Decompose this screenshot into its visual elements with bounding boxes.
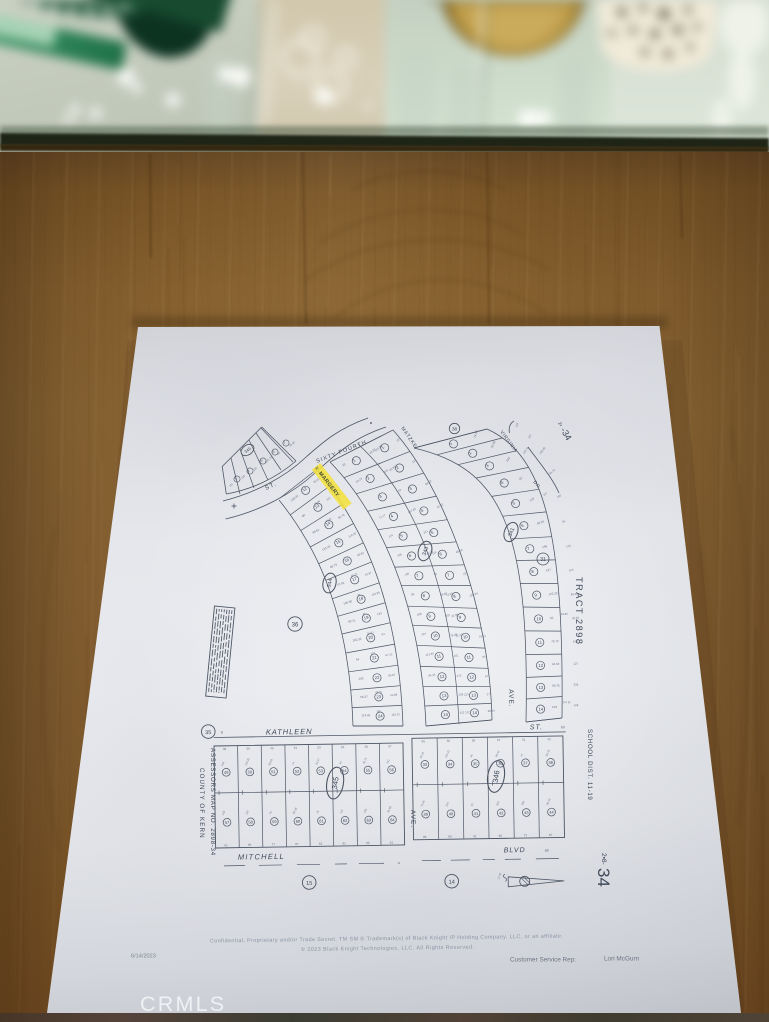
svg-text:35: 35 <box>205 730 211 736</box>
svg-text:-34: -34 <box>558 426 573 442</box>
svg-text:115: 115 <box>252 466 258 472</box>
svg-text:AVE.: AVE. <box>507 689 514 707</box>
svg-text:127: 127 <box>573 662 578 666</box>
svg-text:64: 64 <box>390 817 395 822</box>
svg-text:59.76: 59.76 <box>552 684 560 688</box>
svg-text:60: 60 <box>301 513 306 518</box>
svg-text:62: 62 <box>518 476 523 481</box>
svg-text:54: 54 <box>356 657 360 662</box>
svg-text:13: 13 <box>442 693 448 698</box>
svg-text:100.78: 100.78 <box>522 446 530 455</box>
svg-text:232: 232 <box>574 683 579 687</box>
svg-text:98.34: 98.34 <box>488 709 496 713</box>
svg-text:49: 49 <box>270 746 274 750</box>
svg-text:67: 67 <box>485 674 489 678</box>
svg-text:62: 62 <box>343 818 348 823</box>
svg-text:53.23: 53.23 <box>355 476 363 484</box>
svg-text:106: 106 <box>520 800 526 806</box>
svg-text:115: 115 <box>376 709 381 713</box>
svg-text:12: 12 <box>439 674 445 680</box>
svg-text:163: 163 <box>495 800 501 806</box>
svg-text:63: 63 <box>319 842 323 846</box>
svg-text:221: 221 <box>423 529 429 535</box>
svg-text:171: 171 <box>487 692 492 696</box>
svg-text:111: 111 <box>228 482 234 488</box>
svg-text:ST.: ST. <box>530 724 543 731</box>
svg-text:6: 6 <box>439 551 444 557</box>
svg-text:58: 58 <box>248 819 253 824</box>
svg-text:5: 5 <box>512 500 517 506</box>
svg-text:20: 20 <box>368 634 374 640</box>
svg-text:40.71: 40.71 <box>362 756 369 764</box>
svg-text:2▪: 2▪ <box>557 421 564 427</box>
svg-text:116.57: 116.57 <box>391 712 400 716</box>
svg-text:8: 8 <box>453 593 457 599</box>
svg-text:80: 80 <box>448 835 452 839</box>
svg-text:53: 53 <box>318 768 323 773</box>
svg-text:80: 80 <box>482 654 486 659</box>
svg-text:49: 49 <box>433 571 438 576</box>
svg-text:55.31: 55.31 <box>419 751 426 759</box>
svg-text:ST.: ST. <box>264 481 278 491</box>
svg-text:43: 43 <box>547 737 551 741</box>
svg-text:10: 10 <box>463 634 469 640</box>
svg-text:123.45: 123.45 <box>321 544 331 552</box>
svg-text:ASSESSORS MAP NO. 2898-34: ASSESSORS MAP NO. 2898-34 <box>209 748 216 856</box>
svg-text:83: 83 <box>248 843 252 847</box>
svg-text:56.63: 56.63 <box>267 758 274 766</box>
svg-text:196: 196 <box>542 544 548 549</box>
svg-text:58.37: 58.37 <box>360 694 368 699</box>
svg-text:82.11: 82.11 <box>348 618 356 624</box>
svg-text:38: 38 <box>452 427 458 432</box>
svg-text:51: 51 <box>271 769 276 774</box>
svg-text:130.60: 130.60 <box>343 599 353 606</box>
svg-text:219: 219 <box>240 473 246 479</box>
svg-text:56: 56 <box>422 739 426 743</box>
svg-text:187: 187 <box>546 568 552 573</box>
svg-text:6/14/2023: 6/14/2023 <box>131 954 156 960</box>
svg-text:128: 128 <box>574 703 579 707</box>
svg-text:33: 33 <box>423 762 428 767</box>
svg-text:128.91: 128.91 <box>290 493 300 502</box>
svg-text:346: 346 <box>491 770 502 784</box>
svg-text:80: 80 <box>545 849 549 853</box>
svg-text:77: 77 <box>272 842 276 846</box>
svg-text:24: 24 <box>378 713 384 718</box>
svg-text:12: 12 <box>538 663 543 668</box>
svg-text:6: 6 <box>408 553 413 559</box>
svg-text:113: 113 <box>460 710 465 714</box>
svg-text:© 2023 Black Knight Technologi: © 2023 Black Knight Technologies, LLC. A… <box>301 944 474 953</box>
svg-text:90.87: 90.87 <box>388 673 396 678</box>
svg-text:TRACT 2898: TRACT 2898 <box>574 577 584 645</box>
svg-text:122.20: 122.20 <box>243 757 250 767</box>
svg-text:49.19: 49.19 <box>375 690 382 695</box>
svg-text:75.26: 75.26 <box>419 799 426 807</box>
svg-text:2: 2 <box>467 450 473 455</box>
svg-text:84.79: 84.79 <box>548 468 556 476</box>
svg-text:21: 21 <box>372 655 378 661</box>
svg-text:224: 224 <box>421 631 427 636</box>
svg-text:48: 48 <box>223 747 227 751</box>
svg-text:36: 36 <box>292 623 299 629</box>
svg-text:44.32: 44.32 <box>552 662 560 666</box>
svg-text:81.10: 81.10 <box>545 797 552 805</box>
svg-text:211: 211 <box>385 758 391 764</box>
svg-text:7: 7 <box>446 572 451 578</box>
svg-text:107.81: 107.81 <box>563 700 572 704</box>
svg-text:69.75: 69.75 <box>329 562 338 569</box>
svg-text:3: 3 <box>484 463 490 468</box>
svg-text:132: 132 <box>411 458 417 464</box>
svg-text:45.26: 45.26 <box>455 548 463 555</box>
svg-text:87: 87 <box>549 833 553 837</box>
svg-text:31: 31 <box>540 557 546 563</box>
svg-text:Confidential, Proprietary and/: Confidential, Proprietary and/or Trade S… <box>210 933 563 945</box>
svg-text:111: 111 <box>339 808 345 814</box>
svg-text:5: 5 <box>430 529 435 535</box>
svg-text:37: 37 <box>523 760 528 765</box>
svg-text:70.51: 70.51 <box>479 633 487 638</box>
svg-text:345: 345 <box>330 776 341 790</box>
svg-text:55: 55 <box>366 768 371 773</box>
svg-text:59: 59 <box>472 739 476 743</box>
svg-text:215: 215 <box>464 692 469 696</box>
svg-text:61: 61 <box>319 818 324 823</box>
svg-text:114.91: 114.91 <box>361 713 370 717</box>
svg-text:86: 86 <box>423 835 427 839</box>
svg-text:60: 60 <box>561 725 565 729</box>
svg-text:75.72: 75.72 <box>551 639 559 643</box>
svg-text:2▪8-: 2▪8- <box>600 853 607 865</box>
svg-text:4: 4 <box>420 507 425 513</box>
svg-text:95.83: 95.83 <box>386 805 393 813</box>
svg-text:97.52: 97.52 <box>436 502 444 509</box>
svg-text:AVE.: AVE. <box>409 810 416 828</box>
svg-text:64: 64 <box>381 632 385 637</box>
svg-text:61: 61 <box>473 834 477 838</box>
svg-text:112: 112 <box>514 422 519 428</box>
svg-text:34: 34 <box>594 868 613 887</box>
svg-text:151: 151 <box>453 653 459 658</box>
svg-text:15: 15 <box>306 881 312 887</box>
svg-text:99.51: 99.51 <box>312 527 321 534</box>
svg-text:41: 41 <box>474 811 479 816</box>
svg-text:44: 44 <box>549 810 554 815</box>
svg-text:53: 53 <box>317 745 321 749</box>
svg-text:8: 8 <box>531 569 535 574</box>
svg-text:84.15: 84.15 <box>428 673 436 678</box>
svg-text:130: 130 <box>377 611 383 616</box>
svg-text:8: 8 <box>422 593 426 599</box>
svg-text:60: 60 <box>296 819 301 824</box>
svg-text:83.80: 83.80 <box>561 612 568 617</box>
svg-text:Lori McGurn: Lori McGurn <box>604 956 640 963</box>
svg-text:11: 11 <box>538 640 543 645</box>
svg-text:123: 123 <box>568 568 574 573</box>
svg-text:56.42: 56.42 <box>494 749 501 757</box>
svg-text:68: 68 <box>499 834 503 838</box>
svg-text:112.90: 112.90 <box>371 590 381 596</box>
svg-text:11: 11 <box>466 654 472 660</box>
svg-text:122.25: 122.25 <box>548 591 558 596</box>
svg-text:MATZKE: MATZKE <box>399 426 418 450</box>
svg-text:50: 50 <box>248 769 253 774</box>
svg-text:9: 9 <box>428 613 432 619</box>
svg-text:109: 109 <box>416 612 422 617</box>
svg-text:76: 76 <box>315 809 320 814</box>
svg-text:35: 35 <box>473 761 478 766</box>
svg-text:47: 47 <box>519 752 524 757</box>
svg-text:74: 74 <box>291 761 296 766</box>
svg-text:KATHLEEN: KATHLEEN <box>266 727 313 737</box>
svg-text:87: 87 <box>295 842 299 846</box>
svg-text:63: 63 <box>276 450 281 455</box>
svg-text:6: 6 <box>520 522 525 528</box>
svg-text:59: 59 <box>365 745 369 749</box>
svg-text:COUNTY OF KERN: COUNTY OF KERN <box>198 768 205 839</box>
svg-text:1: 1 <box>448 441 454 445</box>
svg-text:17-40: 17-40 <box>496 872 502 880</box>
svg-text:341: 341 <box>507 527 516 538</box>
svg-text:12: 12 <box>469 674 475 680</box>
svg-text:38: 38 <box>548 760 553 765</box>
svg-text:156: 156 <box>221 810 227 816</box>
svg-text:14: 14 <box>538 707 543 712</box>
svg-text:89: 89 <box>366 841 370 845</box>
svg-text:42: 42 <box>499 810 504 815</box>
svg-text:349: 349 <box>243 446 252 454</box>
svg-text:5: 5 <box>399 533 404 539</box>
svg-text:157: 157 <box>542 491 548 497</box>
svg-text:MITCHELL: MITCHELL <box>238 852 285 862</box>
svg-text:114: 114 <box>388 533 394 539</box>
svg-text:140: 140 <box>556 493 562 499</box>
svg-text:105: 105 <box>358 676 364 681</box>
svg-text:170: 170 <box>456 673 462 678</box>
svg-text:224: 224 <box>444 801 450 807</box>
svg-text:≡: ≡ <box>221 730 224 735</box>
svg-text:65.76: 65.76 <box>337 513 345 520</box>
svg-text:34: 34 <box>448 762 453 767</box>
svg-text:14: 14 <box>449 880 455 886</box>
svg-text:124: 124 <box>244 809 250 815</box>
svg-text:57: 57 <box>497 738 501 742</box>
svg-text:52: 52 <box>295 769 300 774</box>
svg-text:51: 51 <box>522 738 526 742</box>
svg-text:59: 59 <box>246 747 250 751</box>
svg-text:42.97: 42.97 <box>364 571 372 577</box>
svg-text:112: 112 <box>465 710 470 714</box>
svg-text:40: 40 <box>449 811 454 816</box>
svg-text:100.42: 100.42 <box>538 446 547 456</box>
svg-text:344: 344 <box>327 578 335 588</box>
svg-text:123: 123 <box>566 543 572 548</box>
svg-text:110.20: 110.20 <box>348 531 358 539</box>
svg-text:56: 56 <box>389 767 394 772</box>
svg-text:10: 10 <box>536 616 542 621</box>
svg-text:41.88: 41.88 <box>390 693 398 698</box>
svg-text:89.26: 89.26 <box>536 519 545 525</box>
svg-text:65: 65 <box>562 519 567 524</box>
svg-text:121.65: 121.65 <box>425 651 435 656</box>
svg-text:43: 43 <box>524 810 529 815</box>
svg-text:67.10: 67.10 <box>385 652 393 657</box>
svg-text:121: 121 <box>527 433 533 439</box>
svg-text:231: 231 <box>362 807 368 813</box>
svg-text:119: 119 <box>431 550 437 556</box>
svg-text:7: 7 <box>527 546 531 552</box>
svg-text:DR: DR <box>531 480 541 490</box>
svg-text:107.83: 107.83 <box>407 507 417 515</box>
svg-text:7: 7 <box>415 573 420 579</box>
svg-text:53: 53 <box>341 745 345 749</box>
svg-text:123: 123 <box>396 488 402 494</box>
svg-text:48.82: 48.82 <box>356 551 364 558</box>
svg-text:78.28: 78.28 <box>288 440 296 448</box>
svg-text:VIRGINIA: VIRGINIA <box>498 430 518 454</box>
svg-text:46: 46 <box>469 753 474 758</box>
svg-text:190: 190 <box>404 571 410 576</box>
svg-text:81: 81 <box>550 616 554 620</box>
svg-text:23: 23 <box>376 694 382 699</box>
svg-text:4: 4 <box>389 513 394 519</box>
svg-text:Customer Service Rep:: Customer Service Rep: <box>510 957 576 964</box>
svg-text:SCHOOL DIST. 11-19: SCHOOL DIST. 11-19 <box>586 729 593 801</box>
svg-text:105: 105 <box>397 552 403 558</box>
svg-text:89: 89 <box>341 462 346 467</box>
svg-text:22: 22 <box>374 675 380 681</box>
svg-text:54: 54 <box>294 746 298 750</box>
svg-text:39: 39 <box>423 812 428 817</box>
svg-text:61: 61 <box>224 843 228 847</box>
svg-text:103: 103 <box>552 705 557 709</box>
svg-text:9: 9 <box>534 592 538 597</box>
svg-text:57: 57 <box>225 820 230 825</box>
svg-text:11: 11 <box>436 653 442 659</box>
svg-text:91: 91 <box>470 802 475 807</box>
svg-text:BLVD: BLVD <box>504 847 526 854</box>
svg-text:57: 57 <box>388 744 392 748</box>
svg-text:61: 61 <box>390 841 394 845</box>
svg-text:10: 10 <box>432 632 438 638</box>
svg-text:61: 61 <box>342 841 346 845</box>
svg-text:102.32: 102.32 <box>352 637 362 643</box>
svg-text:44: 44 <box>338 760 343 765</box>
svg-text:66.12: 66.12 <box>424 479 432 486</box>
svg-text:13: 13 <box>471 692 477 697</box>
svg-text:55.78: 55.78 <box>544 749 551 757</box>
svg-text:93.47: 93.47 <box>314 757 321 765</box>
svg-text:118: 118 <box>529 497 535 503</box>
svg-text:150: 150 <box>505 456 511 463</box>
svg-text:73: 73 <box>524 833 528 837</box>
svg-text:124.12: 124.12 <box>444 749 451 759</box>
svg-text:77.59: 77.59 <box>336 581 345 587</box>
svg-text:49: 49 <box>224 770 229 775</box>
svg-text:177: 177 <box>370 651 375 656</box>
svg-text:14: 14 <box>443 712 449 717</box>
svg-text:9: 9 <box>458 614 462 620</box>
svg-text:63: 63 <box>367 818 372 823</box>
svg-text:59: 59 <box>272 819 277 824</box>
svg-text:88: 88 <box>411 592 416 597</box>
svg-text:76: 76 <box>268 810 273 815</box>
svg-text:223: 223 <box>396 436 402 442</box>
svg-text:14: 14 <box>472 710 478 715</box>
svg-text:13: 13 <box>539 685 544 690</box>
svg-text:41: 41 <box>362 611 366 616</box>
svg-text:69.18: 69.18 <box>292 806 299 814</box>
svg-text:146: 146 <box>220 761 226 767</box>
svg-text:107: 107 <box>326 496 332 502</box>
svg-text:71.17: 71.17 <box>378 513 386 520</box>
svg-text:74.40: 74.40 <box>473 430 479 439</box>
svg-text:56: 56 <box>447 739 451 743</box>
